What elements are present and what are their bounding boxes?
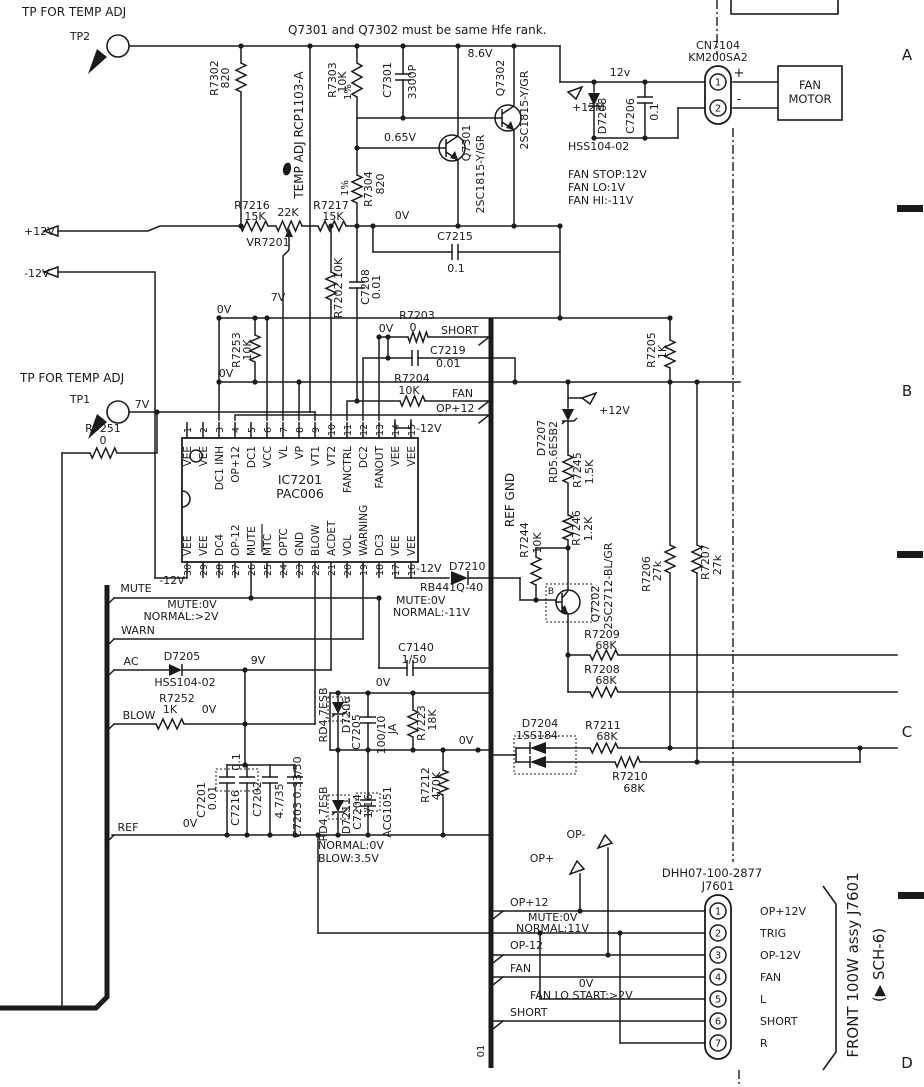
junction-dot	[252, 379, 257, 384]
ic7201-pin-number: 3	[215, 427, 226, 433]
net-tag-riser	[479, 401, 489, 409]
ic7201-pin-number: 8	[295, 427, 306, 433]
short-mid-label: SHORT	[441, 324, 479, 337]
revision-mark-icon	[282, 162, 293, 176]
diode-d7205	[169, 664, 182, 676]
connector-cn7104-pin-number: 2	[715, 104, 721, 115]
cn7104-part: KM200SA2	[688, 51, 747, 64]
ic7201-pin-name: VT1	[310, 446, 322, 466]
connector-j7601-pin-number: 2	[715, 929, 721, 940]
resistor-r7211	[590, 743, 618, 753]
transistor-q7302	[502, 106, 514, 114]
net-tag-riser	[493, 911, 503, 919]
v-0-a-label: 0V	[217, 303, 232, 316]
junction-dot	[376, 334, 381, 339]
hss104-mid-label: HSS104-02	[154, 676, 215, 689]
cropped-top-box	[731, 0, 838, 14]
ic7201-pin-number: 20	[343, 564, 354, 576]
d7205-label: D7205	[164, 650, 200, 663]
wire	[493, 358, 515, 382]
resistor-r7251	[90, 448, 117, 458]
fan-lo-start-label: FAN LO START:>2V	[530, 989, 633, 1002]
junction-dot	[252, 315, 257, 320]
junction-dot	[617, 930, 622, 935]
junction-dot	[410, 747, 415, 752]
tp1-label: TP1	[69, 393, 90, 406]
c7216-value-label: 0.1	[230, 753, 243, 771]
ic7201-pin-name: VCC	[262, 446, 274, 468]
ic7201-pin-number: 25	[263, 564, 274, 576]
ic7201-pin-name: DC3	[374, 534, 386, 556]
r7211-value-label: 68K	[596, 730, 618, 743]
v-12v-label: 12v	[610, 66, 631, 79]
ic7201-pin-name: VEE	[198, 446, 210, 466]
zener-d7207	[574, 418, 577, 421]
ic7201-pin-name: FANCTRL	[342, 446, 354, 493]
r7244-value-label: 10K	[531, 532, 544, 554]
junction-dot	[557, 315, 562, 320]
v-0-short-label: 0V	[379, 322, 394, 335]
ac-tag-label: AC	[123, 655, 138, 668]
r7205-value-label: 1K	[656, 344, 669, 359]
r7304-tol-label: 1%	[340, 180, 351, 196]
c7216-label: C7216	[229, 790, 242, 826]
r7304-value-label: 820	[374, 174, 387, 195]
ic7201-pin-number: 5	[247, 427, 258, 433]
v-0-65-label: 0.65V	[384, 131, 416, 144]
tp2-label: TP2	[69, 30, 90, 43]
ic7201-pin-number: 21	[327, 564, 338, 576]
normal-m11v-label: NORMAL:-11V	[393, 606, 470, 619]
r7223-value-label: 18K	[426, 709, 439, 731]
assembly-brace	[823, 886, 836, 1070]
net-tag-riser	[493, 1021, 503, 1029]
r7207-value-label: 27k	[711, 554, 724, 575]
ic7201-pin-number: 1	[183, 427, 194, 433]
m12v-d7210-label: -12V	[416, 562, 442, 575]
c7202-value-label: 4.7/35	[273, 783, 286, 818]
c7206-label: C7206	[624, 98, 637, 134]
junction-dot	[335, 747, 340, 752]
short-bot-label: SHORT	[510, 1006, 548, 1019]
ic7201-pin-number: 15	[407, 424, 418, 436]
junction-dot	[565, 379, 570, 384]
ic7201-ref: IC7201	[278, 472, 322, 487]
fan-stop-label: FAN STOP:12V	[568, 168, 647, 181]
c7219-label: C7219	[430, 344, 466, 357]
d7210-label: D7210	[449, 560, 485, 573]
ic7201-pin-name: GND	[294, 532, 306, 556]
ic7201-pin-name: VEE	[406, 536, 418, 556]
d7208-label: D7208	[596, 98, 609, 134]
r7246-value-label: 1.2K	[582, 516, 595, 541]
op-plus-arrow-icon	[570, 861, 584, 874]
r7303-tol-label: 1%	[343, 84, 354, 100]
junction-dot	[242, 667, 247, 672]
junction-dot	[365, 747, 370, 752]
fan-bot-label: FAN	[510, 962, 531, 975]
ic7201-pin-name: OPTC	[278, 528, 290, 556]
junction-dot	[565, 652, 570, 657]
left-bus	[0, 585, 107, 1008]
ic7201: IC7201PAC0061VEE30VEE2VEE29VEE3DC1 INH28…	[182, 422, 418, 578]
fan-motor-label: FAN	[799, 78, 821, 92]
v-0-rail-label: 0V	[376, 676, 391, 689]
diode-d7204-b	[530, 756, 546, 768]
ic7201-pin-number: 17	[391, 564, 402, 576]
junction-dot	[370, 223, 375, 228]
junction-dot	[511, 43, 516, 48]
temp-adj-label: TEMP ADJ RCP1103-A	[292, 71, 306, 200]
c7140-value-label: 1/50	[402, 653, 427, 666]
transistor-q7301	[446, 136, 458, 144]
ic7201-pin-number: 30	[183, 564, 194, 576]
r7216-value-label: 15K	[244, 210, 266, 223]
p12v-feed-label: +12V	[24, 225, 55, 238]
m12v-ic-label: -12V	[159, 574, 185, 587]
c7202-label: C7202	[251, 781, 264, 817]
d7210-type-label: RB441Q-40	[420, 581, 483, 594]
junction-dot	[475, 747, 480, 752]
connector-j7601-pin-label: R	[760, 1037, 768, 1050]
r7206-value-label: 27k	[651, 560, 664, 581]
j7601-name: J7601	[701, 879, 735, 893]
junction-dot	[238, 223, 243, 228]
ic7201-pin-number: 27	[231, 564, 242, 576]
wire	[235, 415, 440, 420]
r7204-value-label: 10K	[398, 384, 420, 397]
zone-tick	[897, 551, 923, 558]
resistor-r7210	[615, 757, 640, 767]
zone-tick	[898, 892, 924, 899]
c7215-label: C7215	[437, 230, 473, 243]
ic7201-pin-name: DC1 INH	[214, 446, 226, 490]
connector-j7601-pin-number: 1	[715, 907, 721, 918]
fan-hi-label: FAN HI:-11V	[568, 194, 634, 207]
ic7201-pin-name: OP+12	[230, 446, 242, 483]
test-point-tp2	[107, 35, 129, 57]
junction-dot	[512, 379, 517, 384]
junction-dot	[354, 43, 359, 48]
wire	[117, 412, 157, 453]
v-0-ref-label: 0V	[183, 817, 198, 830]
connector-cn7104-pin-number: 1	[715, 78, 721, 89]
junction-dot	[511, 223, 516, 228]
mute-tag-label: MUTE	[120, 582, 151, 595]
r7208-value-label: 68K	[595, 674, 617, 687]
ic7201-pin-number: 24	[279, 564, 290, 576]
ic7201-pin-number: 9	[311, 427, 322, 433]
junction-dot	[694, 759, 699, 764]
ic7201-pin-name: VEE	[182, 536, 194, 556]
junction-dot	[385, 334, 390, 339]
junction-dot	[591, 79, 596, 84]
resistor-r7204	[400, 396, 425, 406]
r7253-value-label: 10K	[241, 339, 254, 361]
m12v-pins-label: -12V	[416, 422, 442, 435]
transistor-q7202	[562, 591, 568, 598]
c7203-label: C7203 0.33/50	[291, 756, 304, 837]
connector-cn7104-polarity: +	[734, 66, 745, 81]
resistor-r7206	[665, 545, 675, 573]
q7301-type-label: 2SC1815-Y/GR	[474, 134, 487, 213]
junction-dot	[354, 145, 359, 150]
c7301-value-label: 3300P	[406, 64, 419, 99]
ic7201-pin-name: VT2	[326, 446, 338, 466]
resistor-r7244	[531, 557, 541, 585]
q7301-label: Q7301	[460, 125, 473, 162]
ic7201-pin-number: 16	[407, 564, 418, 576]
ic7201-pin-number: 4	[231, 427, 242, 433]
normal-2v-label: NORMAL:>2V	[143, 610, 219, 623]
v-8-6-label: 8.6V	[467, 47, 492, 60]
test-point-tp2-arrow-icon	[88, 49, 107, 74]
connector-j7601-pin-number: 3	[715, 951, 721, 962]
junction-dot	[557, 223, 562, 228]
zone-letter-a: A	[902, 46, 913, 64]
c7219-value-label: 0.01	[436, 357, 461, 370]
ic7201-part: PAC006	[276, 486, 324, 501]
junction-dot	[667, 745, 672, 750]
hss104-top-label: HSS104-02	[568, 140, 629, 153]
junction-dot	[694, 379, 699, 384]
c7205-label: C7205	[350, 714, 363, 750]
junction-dot	[365, 690, 370, 695]
c7201-value-label: 0.01	[206, 786, 219, 811]
net-tag-riser	[493, 955, 503, 963]
wire	[283, 234, 289, 420]
junction-dot	[667, 379, 672, 384]
ic7201-pin-number: 12	[359, 424, 370, 436]
ic7201-pin-name: ACDET	[326, 520, 338, 556]
r7203-label: R7203	[399, 309, 435, 322]
sch-ref-note: (▶ SCH-6)	[870, 928, 888, 1002]
ref-tag-label: REF	[118, 821, 139, 834]
wire	[58, 226, 240, 231]
vr7201-label: VR7201	[246, 236, 289, 249]
junction-dot	[216, 315, 221, 320]
ic7201-pin-number: 19	[359, 564, 370, 576]
junction-dot	[857, 745, 862, 750]
j7601-part: DHH07-100-2877	[662, 866, 762, 880]
p12m-arrow-icon	[568, 87, 582, 99]
r7302-value-label: 820	[219, 68, 232, 89]
ic7201-pin-name: VL	[278, 446, 290, 459]
resistor-r7302	[236, 63, 246, 92]
ic7201-pin-number: 10	[327, 424, 338, 436]
bus-01-label: 01	[476, 1045, 487, 1058]
ic7201-pin-name: VEE	[406, 446, 418, 466]
wire	[347, 401, 400, 420]
op-minus-label: OP-	[566, 828, 585, 841]
junction-dot	[400, 43, 405, 48]
assembly-boundary	[717, 0, 739, 1087]
junction-dot	[244, 832, 249, 837]
ic7201-pin-number: 11	[343, 424, 354, 436]
r7244-label: R7244	[518, 522, 531, 558]
ic7201-pin-number: 29	[199, 564, 210, 576]
junction-dot	[455, 43, 460, 48]
ic7201-pin-number: 22	[311, 564, 322, 576]
junction-dot	[242, 762, 247, 767]
net-tag-riser	[479, 415, 489, 423]
resistor-r7304	[352, 175, 362, 203]
junction-dot	[642, 79, 647, 84]
diode-d7204-a	[530, 742, 546, 754]
connector-j7601-pin-number: 6	[715, 1017, 721, 1028]
r7212-value-label: 470K	[430, 771, 443, 800]
test-point-tp1	[107, 401, 129, 423]
junction-dot	[354, 398, 359, 403]
c7204-value-label: 1/16	[362, 794, 375, 819]
connector-j7601-pin-label: TRIG	[759, 927, 786, 940]
schematic-page: ABCDCN7104KM200SA2FANMOTORDHH07-100-2877…	[0, 0, 924, 1087]
junction-dot	[440, 747, 445, 752]
ic7201-pin-name: VEE	[182, 446, 194, 466]
ic7201-pin-name: MUTE	[246, 526, 258, 556]
junction-dot	[376, 595, 381, 600]
junction-dot	[248, 595, 253, 600]
ic7201-pin-number: 18	[375, 564, 386, 576]
ic7201-pin-number: 26	[247, 564, 258, 576]
ic7201-pin-number: 2	[199, 427, 210, 433]
ic7201-pin-name: WARNING	[358, 505, 370, 556]
ic7201-pin-name: VEE	[390, 536, 402, 556]
junction-dot	[154, 409, 159, 414]
q7302-label: Q7302	[494, 60, 507, 97]
ic7201-pin-number: 28	[215, 564, 226, 576]
ic7201-pin-name: VP	[294, 446, 306, 460]
tp-top-caption-label: TP FOR TEMP ADJ	[21, 5, 126, 19]
v-9-label: 9V	[251, 654, 266, 667]
connector-j7601-pin-label: OP+12V	[760, 905, 807, 918]
ic7201-notch	[182, 491, 190, 507]
op-plus-label: OP+	[530, 852, 555, 865]
ic7201-pin-number: 23	[295, 564, 306, 576]
connector-j7601-pin-label: OP-12V	[760, 949, 801, 962]
c7205-grade-label: JA	[386, 723, 399, 735]
r7217-value-label: 15K	[322, 210, 344, 223]
c7215-value-label: 0.1	[447, 262, 465, 275]
ic7201-pin-name: DC2	[358, 446, 370, 468]
junction-dot	[224, 832, 229, 837]
junction-dot	[354, 223, 359, 228]
junction-dot	[440, 832, 445, 837]
v-7-tp1-label: 7V	[135, 398, 150, 411]
r7202-label: R7202 10K	[332, 257, 345, 318]
resistor-r7252	[156, 719, 184, 729]
fan-motor-label: MOTOR	[788, 92, 831, 106]
r7203-value-label: 0	[410, 321, 417, 334]
v-0-r7252-label: 0V	[202, 703, 217, 716]
junction-dot	[385, 355, 390, 360]
normal-11v-label: NORMAL:11V	[516, 922, 589, 935]
connector-j7601-pin-number: 5	[715, 995, 721, 1006]
junction-dot	[307, 43, 312, 48]
resistor-r7208	[590, 687, 618, 697]
ic7201-pin-name: VOL	[342, 535, 354, 556]
connector-j7601-pin-label: FAN	[760, 971, 781, 984]
connector-cn7104-polarity: -	[737, 92, 742, 107]
ic7201-pin-name: VEE	[390, 446, 402, 466]
junction-dot	[216, 379, 221, 384]
connector-cn7104: 1+2-	[705, 66, 744, 124]
r7209-value-label: 68K	[595, 639, 617, 652]
ic7201-pin-name: FANOUT	[374, 445, 386, 488]
junction-dot	[577, 908, 582, 913]
connector-j7601-pin-label: SHORT	[760, 1015, 798, 1028]
q7202-base-label: B	[548, 587, 554, 597]
junction-dot	[296, 379, 301, 384]
connector-j7601-pin-number: 7	[715, 1039, 721, 1050]
r7251-value-label: 0	[100, 434, 107, 447]
connector-j7601-pin-label: L	[760, 993, 767, 1006]
junction-dot	[667, 315, 672, 320]
v-0-top-label: 0V	[395, 209, 410, 222]
ic7201-pin-number: 6	[263, 427, 274, 433]
zone-letter-d: D	[901, 1054, 913, 1072]
junction-dot	[400, 115, 405, 120]
fan-mid-label: FAN	[452, 387, 473, 400]
ic7201-pin-name: DC4	[214, 534, 226, 556]
c7206-value-label: 0.1	[648, 103, 661, 121]
p12v-d7207-arrow-icon	[582, 393, 596, 404]
v-7-mid-label: 7V	[271, 291, 286, 304]
ic7201-pin-name: BLOW	[310, 524, 322, 556]
op-12-bot-label: OP-12	[510, 939, 543, 952]
m12v-feed-label: -12V	[24, 267, 50, 280]
front-assy-note: FRONT 100W assy J7601	[844, 872, 862, 1057]
tp-mid-caption-label: TP FOR TEMP ADJ	[19, 371, 124, 385]
zone-letter-c: C	[902, 723, 912, 741]
op-minus-arrow-icon	[598, 835, 612, 848]
ic7201-pin-name: MTC	[262, 534, 274, 556]
r7252-value-label: 1K	[163, 703, 178, 716]
ic7201-pin-name: OP-12	[230, 524, 242, 556]
junction-dot	[533, 597, 538, 602]
blow-3-5v-label: BLOW:3.5V	[318, 852, 379, 865]
ic7201-pin-name: VEE	[198, 536, 210, 556]
junction-dot	[267, 832, 272, 837]
junction-dot	[238, 43, 243, 48]
acg1051-label: ACG1051	[381, 786, 394, 838]
p12v-d7207-label: +12V	[599, 404, 630, 417]
junction-dot	[455, 223, 460, 228]
connector-j7601: 1OP+12V2TRIG3OP-12V4FAN5L6SHORT7R	[705, 895, 807, 1059]
zone-letter-b: B	[902, 382, 912, 400]
hfe-note-label: Q7301 and Q7302 must be same Hfe rank.	[288, 23, 546, 37]
q7302-type-label: 2SC1815-Y/GR	[518, 70, 531, 149]
net-tag-riser	[493, 977, 503, 985]
junction-dot	[642, 135, 647, 140]
junction-dot	[328, 223, 333, 228]
junction-dot	[264, 315, 269, 320]
q7202-label: Q7202	[589, 586, 602, 623]
junction-dot	[410, 690, 415, 695]
op12-mid-label: OP+12	[436, 402, 475, 415]
fan-control-schematic: ABCDCN7104KM200SA2FANMOTORDHH07-100-2877…	[0, 0, 924, 1087]
ic7201-pin-name: DC1	[246, 446, 258, 468]
zener-d7207	[562, 409, 574, 421]
r7210-value-label: 68K	[623, 782, 645, 795]
warn-tag-label: WARN	[121, 624, 155, 637]
junction-dot	[242, 721, 247, 726]
c7301-label: C7301	[381, 62, 394, 98]
ic7201-pin-number: 13	[375, 424, 386, 436]
vr7201-value-label: 22K	[277, 206, 299, 219]
r7245-value-label: 1.5K	[583, 459, 596, 484]
ic7201-pin-number: 7	[279, 427, 290, 433]
